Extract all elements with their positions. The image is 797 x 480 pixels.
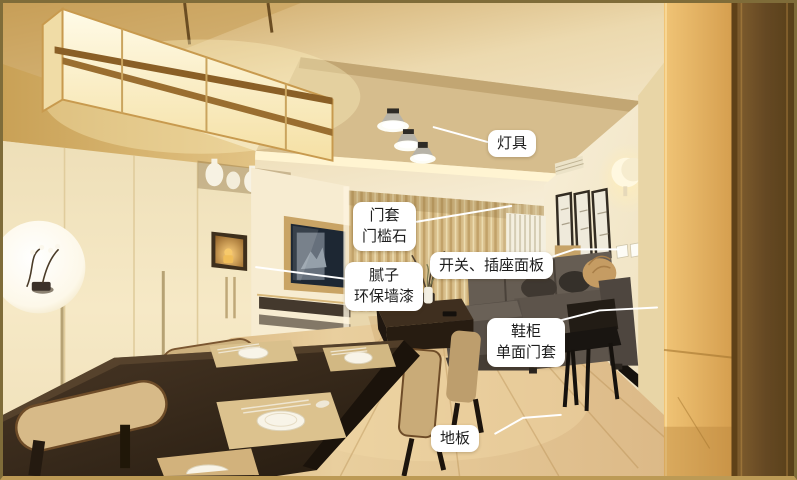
- label-switch-socket-panel: 开关、插座面板: [430, 252, 553, 279]
- leader-floor: [495, 415, 561, 434]
- label-shoe-cabinet-casing: 鞋柜 单面门套: [487, 318, 565, 367]
- leader-door-casing: [417, 206, 511, 222]
- label-floor: 地板: [431, 425, 479, 452]
- leader-lighting: [434, 127, 488, 142]
- label-door-casing-threshold: 门套 门槛石: [353, 202, 416, 251]
- label-putty-eco-paint: 腻子 环保墙漆: [345, 262, 423, 311]
- label-lighting: 灯具: [488, 130, 536, 157]
- leader-putty-paint: [256, 267, 346, 279]
- leader-shoe-cabinet: [557, 307, 657, 321]
- annotated-room-photo: 灯具 门套 门槛石 开关、插座面板 腻子 环保墙漆 鞋柜 单面门套 地板: [0, 0, 797, 480]
